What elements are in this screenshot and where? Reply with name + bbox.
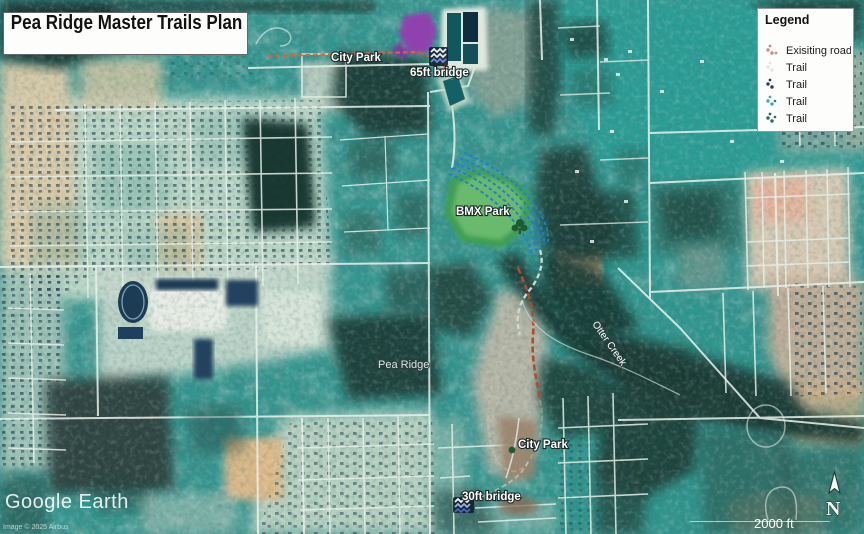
svg-text:Otter Creek: Otter Creek [590, 319, 629, 368]
svg-text:Image © 2025 Airbus: Image © 2025 Airbus [3, 523, 69, 531]
svg-text:Google Earth: Google Earth [5, 491, 129, 513]
svg-text:2000 ft: 2000 ft [754, 516, 794, 531]
svg-text:65ft bridge: 65ft bridge [410, 67, 469, 79]
svg-text:Trail: Trail [786, 79, 807, 91]
svg-text:City Park: City Park [518, 439, 568, 451]
svg-text:City Park: City Park [331, 52, 381, 64]
svg-text:Trail: Trail [786, 96, 807, 108]
svg-text:Trail: Trail [786, 113, 807, 125]
svg-text:Pea Ridge: Pea Ridge [378, 359, 429, 371]
svg-text:N: N [826, 498, 841, 520]
svg-text:Exisiting road: Exisiting road [786, 45, 851, 57]
svg-text:BMX Park: BMX Park [456, 206, 510, 218]
svg-text:Trail: Trail [786, 62, 807, 74]
svg-text:30ft bridge: 30ft bridge [462, 491, 521, 503]
